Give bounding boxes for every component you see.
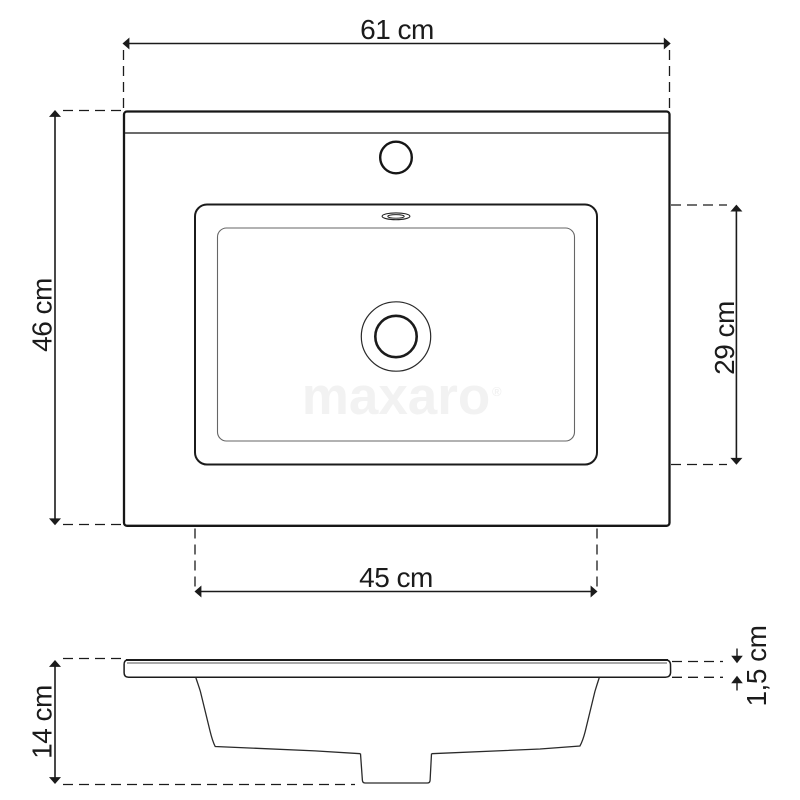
- svg-text:maxaro: maxaro: [302, 367, 491, 426]
- svg-text:45 cm: 45 cm: [359, 562, 433, 593]
- svg-text:61 cm: 61 cm: [360, 14, 434, 45]
- svg-text:®: ®: [492, 384, 502, 399]
- svg-text:29 cm: 29 cm: [709, 301, 740, 375]
- svg-text:46 cm: 46 cm: [27, 278, 58, 352]
- svg-text:1,5 cm: 1,5 cm: [741, 625, 772, 706]
- svg-text:14 cm: 14 cm: [27, 685, 58, 759]
